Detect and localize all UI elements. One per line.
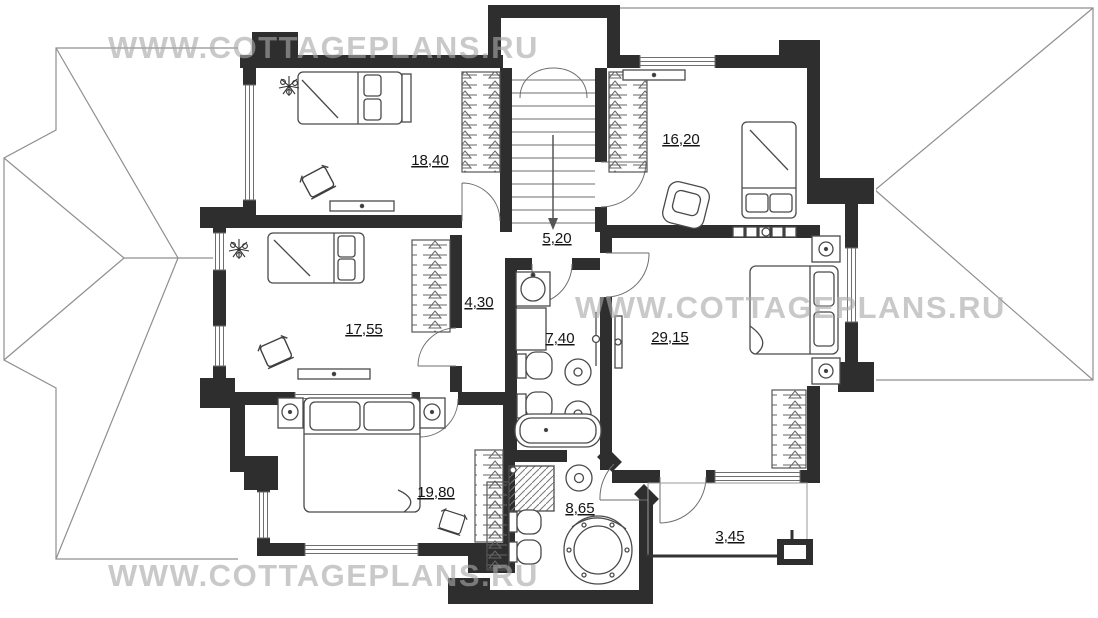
room-area-label: 19,80 <box>417 484 455 501</box>
pillow <box>770 194 792 212</box>
pillow <box>364 402 414 430</box>
closet-hatch <box>487 482 509 570</box>
wall-segment <box>213 215 462 228</box>
roof-left-hips <box>4 48 213 559</box>
room-area-label: 7,40 <box>545 330 574 347</box>
closet-hatch <box>462 72 500 172</box>
room-area-label: 3,45 <box>715 528 744 545</box>
toilet <box>517 352 552 379</box>
room-area-label: 5,20 <box>542 230 571 247</box>
window <box>640 55 715 68</box>
floor-plan-canvas: 18,40 16,20 5,20 4,30 7,40 17,55 29,15 1… <box>0 0 1098 618</box>
wall-segment <box>450 235 462 328</box>
window <box>257 492 270 538</box>
room-area-label: 4,30 <box>464 294 493 311</box>
wall-segment <box>450 366 462 395</box>
floor-plan-page: 18,40 16,20 5,20 4,30 7,40 17,55 29,15 1… <box>0 0 1098 618</box>
wall-segment <box>807 55 820 181</box>
wall-segment <box>807 178 874 204</box>
room-area-label: 8,65 <box>565 500 594 517</box>
closet-hatch <box>609 72 647 172</box>
shower-tray <box>509 466 554 511</box>
pillow <box>364 75 381 96</box>
pillow <box>338 236 355 257</box>
window <box>213 326 226 366</box>
window <box>243 85 256 200</box>
basin <box>565 359 591 385</box>
window <box>715 470 800 483</box>
pillow <box>746 194 768 212</box>
watermark-text: WWW.COTTAGEPLANS.RU <box>108 558 539 593</box>
wall-segment <box>505 450 567 462</box>
cabinet <box>516 308 546 350</box>
bed-bench <box>402 74 411 122</box>
closet-hatch <box>412 240 450 332</box>
wall-segment <box>807 386 820 470</box>
wall-dresser <box>733 227 796 237</box>
closet-hatch <box>772 390 806 468</box>
wall-segment <box>505 258 517 450</box>
pillow <box>338 259 355 280</box>
room-area-label: 17,55 <box>345 321 383 338</box>
window <box>305 543 418 556</box>
pillow <box>310 402 360 430</box>
bathtub <box>515 414 601 447</box>
spa-tub <box>564 516 632 584</box>
wall-segment <box>838 362 874 392</box>
wall-segment <box>639 500 653 596</box>
basin <box>566 465 592 491</box>
room-area-label: 16,20 <box>662 131 700 148</box>
wall-segment <box>500 68 512 232</box>
wall-segment <box>488 5 620 18</box>
room-area-label: 29,15 <box>651 329 689 346</box>
watermark-text: WWW.COTTAGEPLANS.RU <box>108 30 539 65</box>
pillow <box>364 99 381 120</box>
wall-segment <box>505 258 532 270</box>
toilet <box>509 510 541 534</box>
watermark-text: WWW.COTTAGEPLANS.RU <box>575 290 1006 325</box>
room-area-label: 18,40 <box>411 152 449 169</box>
bed <box>298 72 402 124</box>
wall-segment <box>200 378 235 408</box>
window <box>213 233 226 270</box>
